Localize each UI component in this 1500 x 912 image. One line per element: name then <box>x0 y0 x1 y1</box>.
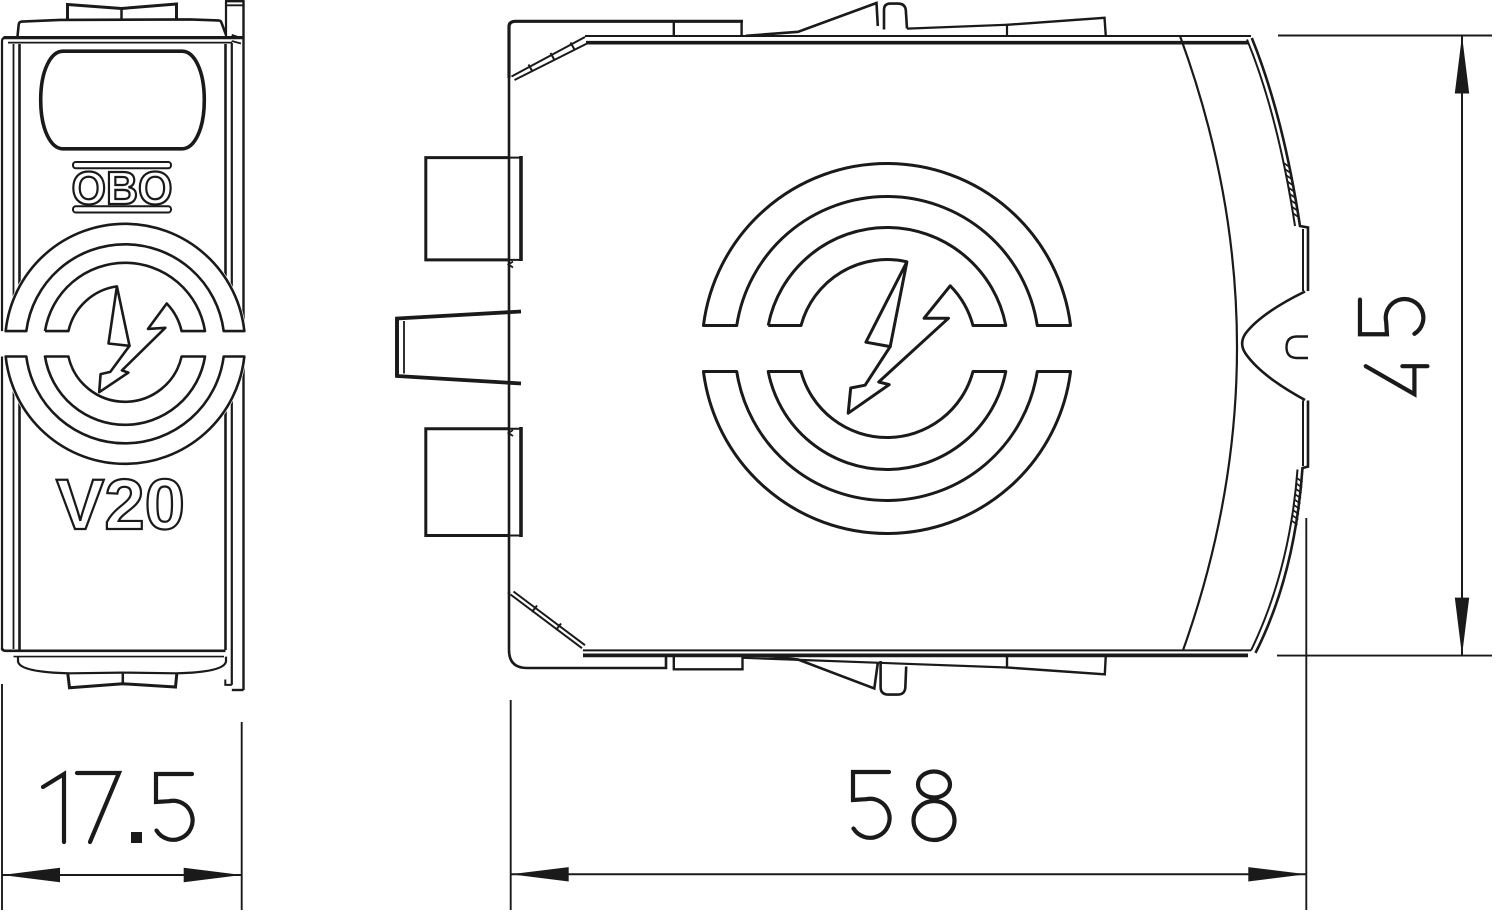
svg-text:V20: V20 <box>56 466 185 545</box>
